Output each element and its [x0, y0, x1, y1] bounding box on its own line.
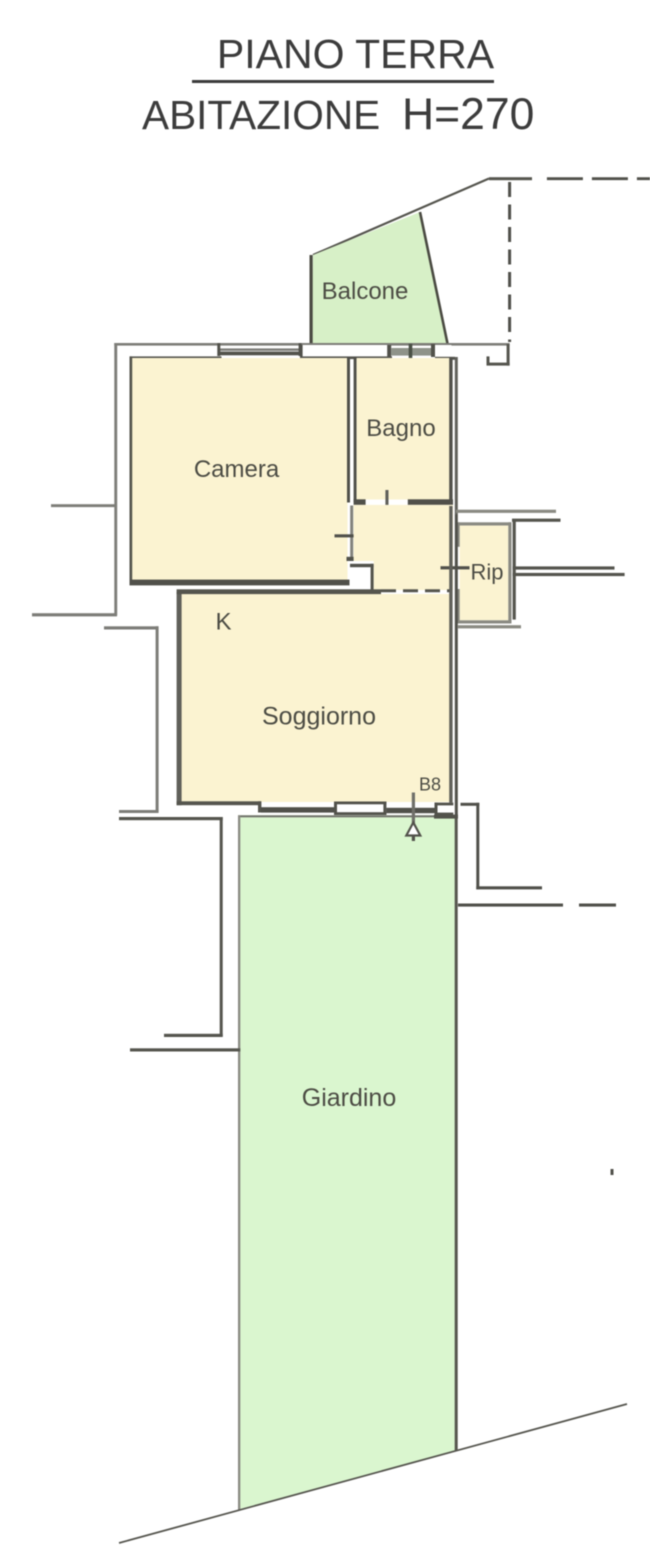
- svg-text:Bagno: Bagno: [366, 415, 435, 442]
- svg-text:ABITAZIONE: ABITAZIONE: [142, 92, 380, 138]
- svg-text:K: K: [215, 609, 231, 636]
- svg-text:Rip: Rip: [470, 560, 503, 585]
- svg-text:Giardino: Giardino: [302, 1084, 397, 1112]
- svg-text:PIANO TERRA: PIANO TERRA: [217, 31, 495, 77]
- svg-text:Soggiorno: Soggiorno: [262, 703, 376, 731]
- svg-text:B8: B8: [419, 775, 441, 795]
- svg-text:Balcone: Balcone: [322, 278, 409, 305]
- svg-text:Camera: Camera: [194, 456, 280, 483]
- svg-text:H=270: H=270: [402, 90, 534, 139]
